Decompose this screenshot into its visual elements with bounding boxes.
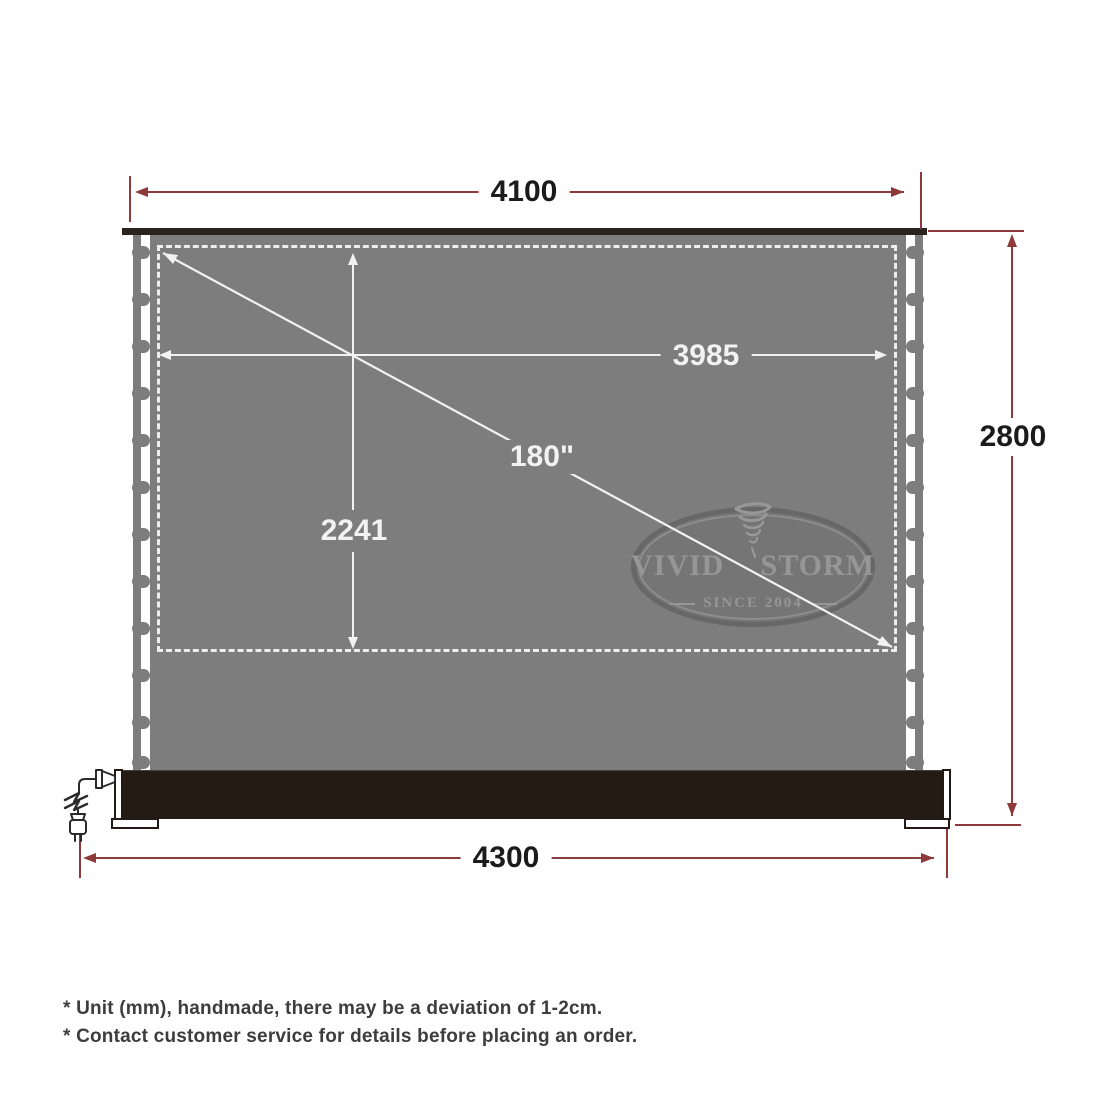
dim-label-viewable-height: 2241 — [309, 510, 400, 552]
dim-arrow-base-width-right — [921, 853, 934, 863]
dim-arrow-total-height-down — [1007, 803, 1017, 816]
dim-line-total-height — [1011, 236, 1013, 816]
dim-line-viewable-width — [161, 354, 885, 356]
dimension-diagram: VIVID STORM SINCE 2004 180" — [0, 0, 1096, 1096]
dim-arrow-base-width-left — [83, 853, 96, 863]
dim-arrow-viewable-width-right — [875, 350, 887, 360]
dim-arrow-total-height-up — [1007, 234, 1017, 247]
footnote-unit: * Unit (mm), handmade, there may be a de… — [63, 998, 602, 1020]
dim-ext-top-width-left — [129, 176, 131, 222]
dim-label-base-width: 4300 — [461, 839, 552, 877]
housing-right-cap — [942, 769, 951, 820]
housing-right-foot — [904, 818, 950, 829]
dim-ext-total-height-bottom — [955, 824, 1021, 826]
dim-ext-base-width-right — [946, 828, 948, 878]
dim-arrow-viewable-height-down — [348, 637, 358, 649]
dim-label-diagonal: 180" — [504, 440, 580, 474]
screen-housing — [122, 770, 944, 819]
dim-arrow-top-width-right — [891, 187, 904, 197]
power-plug-icon — [55, 758, 147, 842]
dim-ext-total-height-top — [928, 230, 1024, 232]
diagonal-dimension-svg — [0, 0, 1096, 1096]
dim-ext-top-width-right — [920, 172, 922, 229]
dim-label-viewable-width: 3985 — [661, 335, 752, 377]
dim-label-total-height: 2800 — [968, 418, 1059, 456]
dim-line-viewable-height — [352, 255, 354, 647]
dim-arrow-top-width-left — [135, 187, 148, 197]
dim-arrow-viewable-width-left — [159, 350, 171, 360]
dim-label-top-width: 4100 — [479, 173, 570, 211]
footnote-contact: * Contact customer service for details b… — [63, 1026, 637, 1048]
dim-arrow-viewable-height-up — [348, 253, 358, 265]
